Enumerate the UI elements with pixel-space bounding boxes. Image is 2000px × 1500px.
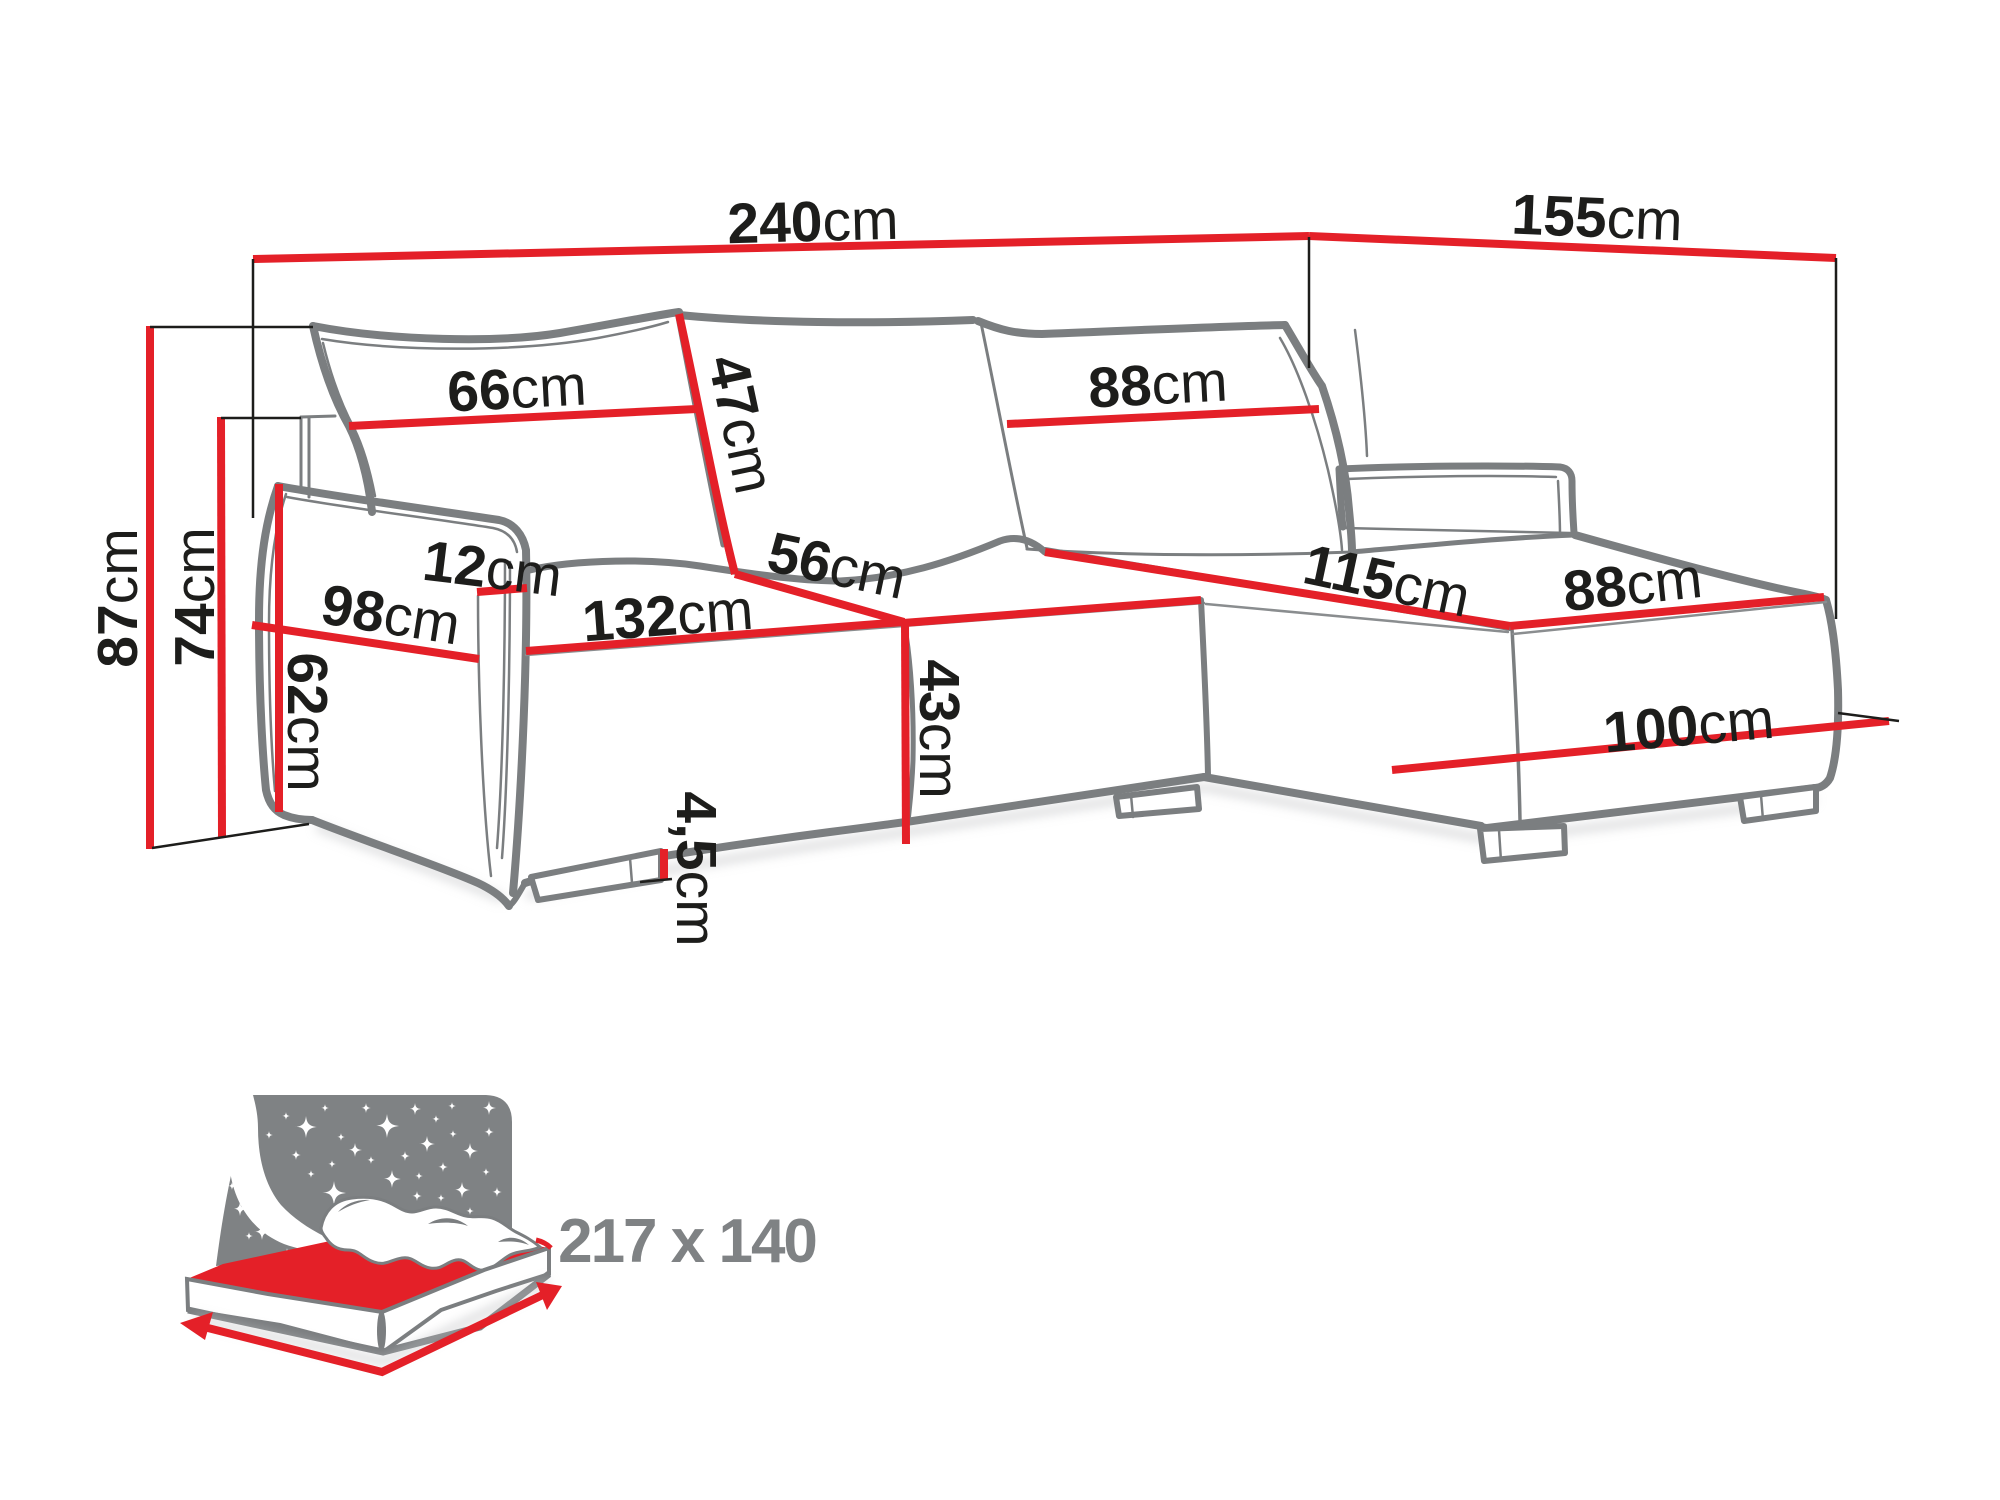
svg-text:62cm: 62cm	[275, 652, 339, 791]
svg-text:87cm: 87cm	[86, 528, 150, 667]
svg-text:240cm: 240cm	[727, 188, 900, 256]
svg-text:66cm: 66cm	[446, 353, 589, 424]
svg-text:155cm: 155cm	[1510, 183, 1684, 254]
svg-text:88cm: 88cm	[1087, 349, 1230, 420]
svg-text:4,5cm: 4,5cm	[664, 791, 728, 946]
svg-text:132cm: 132cm	[580, 578, 755, 655]
svg-text:43cm: 43cm	[907, 659, 971, 798]
svg-text:74cm: 74cm	[163, 527, 227, 666]
svg-text:217 x 140: 217 x 140	[558, 1207, 816, 1276]
